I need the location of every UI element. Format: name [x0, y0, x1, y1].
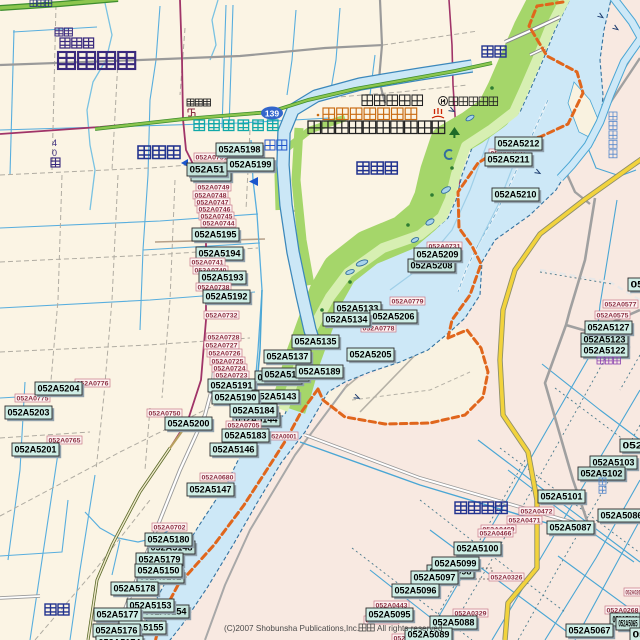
svg-text:052A5099: 052A5099: [435, 559, 477, 569]
svg-text:052A5184: 052A5184: [233, 406, 276, 416]
svg-text:052A5191: 052A5191: [211, 381, 253, 391]
svg-text:052A5199: 052A5199: [230, 160, 272, 170]
svg-text:052A5211: 052A5211: [488, 155, 530, 165]
svg-text:052A026: 052A026: [626, 590, 640, 596]
svg-text:052A0779: 052A0779: [392, 299, 425, 305]
svg-text:052A5102: 052A5102: [581, 469, 623, 479]
svg-text:(C)2007 Shobunsha Publications: (C)2007 Shobunsha Publications,Inc.: [224, 624, 359, 633]
svg-text:052A5096: 052A5096: [395, 586, 437, 596]
svg-text:052A0741: 052A0741: [192, 260, 225, 266]
svg-text:052A0705: 052A0705: [228, 423, 261, 429]
svg-text:052A5201: 052A5201: [15, 445, 57, 455]
svg-text:All rights reserved: All rights reserved: [377, 624, 443, 633]
svg-text:052A50: 052A50: [633, 630, 640, 640]
svg-text:052A0326: 052A0326: [491, 575, 524, 581]
svg-text:052A5147: 052A5147: [190, 485, 232, 495]
svg-text:052A5179: 052A5179: [139, 555, 181, 565]
svg-text:052A5135: 052A5135: [295, 337, 337, 347]
svg-text:139: 139: [265, 109, 279, 119]
svg-text:052A0702: 052A0702: [154, 525, 187, 531]
svg-text:052A5209: 052A5209: [417, 250, 459, 260]
svg-text:052A5180: 052A5180: [148, 535, 190, 545]
svg-text:052A0728: 052A0728: [208, 335, 241, 341]
svg-text:052A5178: 052A5178: [114, 584, 156, 594]
svg-text:052A0744: 052A0744: [203, 221, 236, 227]
svg-text:052A0001: 052A0001: [269, 434, 298, 440]
svg-text:052A5101: 052A5101: [541, 492, 583, 502]
svg-text:052A5193: 052A5193: [202, 273, 244, 283]
svg-text:052A0726: 052A0726: [209, 351, 242, 357]
svg-text:052A5127: 052A5127: [588, 323, 630, 333]
svg-text:052A5206: 052A5206: [373, 312, 415, 322]
svg-text:052A0727: 052A0727: [206, 343, 239, 349]
svg-text:052A51: 052A51: [623, 441, 640, 451]
svg-text:052A5150: 052A5150: [138, 566, 180, 576]
svg-text:052A5183: 052A5183: [225, 431, 267, 441]
svg-text:052A5176: 052A5176: [96, 626, 138, 636]
svg-text:H: H: [440, 99, 445, 106]
svg-text:052A0680: 052A0680: [202, 475, 235, 481]
svg-text:052A5103: 052A5103: [593, 458, 635, 468]
svg-text:052A5086: 052A5086: [601, 511, 640, 521]
svg-text:052A5190: 052A5190: [215, 393, 257, 403]
svg-text:052A5067: 052A5067: [569, 626, 611, 636]
svg-text:052A5205: 052A5205: [350, 350, 392, 360]
svg-text:052A5195: 052A5195: [195, 230, 237, 240]
svg-text:052A5134: 052A5134: [326, 315, 369, 325]
svg-text:4: 4: [52, 138, 57, 148]
svg-text:052A5210: 052A5210: [495, 190, 537, 200]
svg-text:052A5194: 052A5194: [199, 249, 242, 259]
svg-text:052A0466: 052A0466: [480, 531, 513, 537]
svg-text:052A5189: 052A5189: [299, 367, 341, 377]
svg-text:052A5212: 052A5212: [498, 139, 540, 149]
svg-text:0: 0: [52, 148, 57, 158]
svg-text:052A0575: 052A0575: [597, 313, 630, 319]
svg-text:052A0749: 052A0749: [198, 185, 231, 191]
svg-text:052A5204: 052A5204: [38, 384, 81, 394]
svg-text:052A0750: 052A0750: [149, 411, 182, 417]
svg-text:052A5087: 052A5087: [550, 523, 592, 533]
svg-text:052A5192: 052A5192: [206, 292, 248, 302]
svg-text:052A5095: 052A5095: [369, 610, 411, 620]
svg-text:052A5198: 052A5198: [219, 145, 261, 155]
svg-text:052A51: 052A51: [190, 165, 225, 175]
svg-text:052A0471: 052A0471: [509, 518, 542, 524]
svg-text:052A50: 052A50: [631, 280, 640, 290]
svg-text:052A5097: 052A5097: [414, 573, 456, 583]
svg-text:052A5177: 052A5177: [97, 610, 139, 620]
svg-text:052A5122: 052A5122: [584, 346, 626, 356]
svg-text:052A0472: 052A0472: [521, 509, 554, 515]
svg-text:052A0723: 052A0723: [216, 373, 249, 379]
svg-text:052A5146: 052A5146: [213, 445, 255, 455]
svg-text:052A5100: 052A5100: [457, 544, 499, 554]
svg-text:052A5203: 052A5203: [8, 408, 50, 418]
svg-text:052A0577: 052A0577: [605, 302, 638, 308]
svg-text:052A5065: 052A5065: [619, 619, 638, 629]
svg-text:052A0732: 052A0732: [206, 313, 239, 319]
svg-text:052A5137: 052A5137: [267, 352, 309, 362]
svg-text:052A5200: 052A5200: [168, 419, 210, 429]
